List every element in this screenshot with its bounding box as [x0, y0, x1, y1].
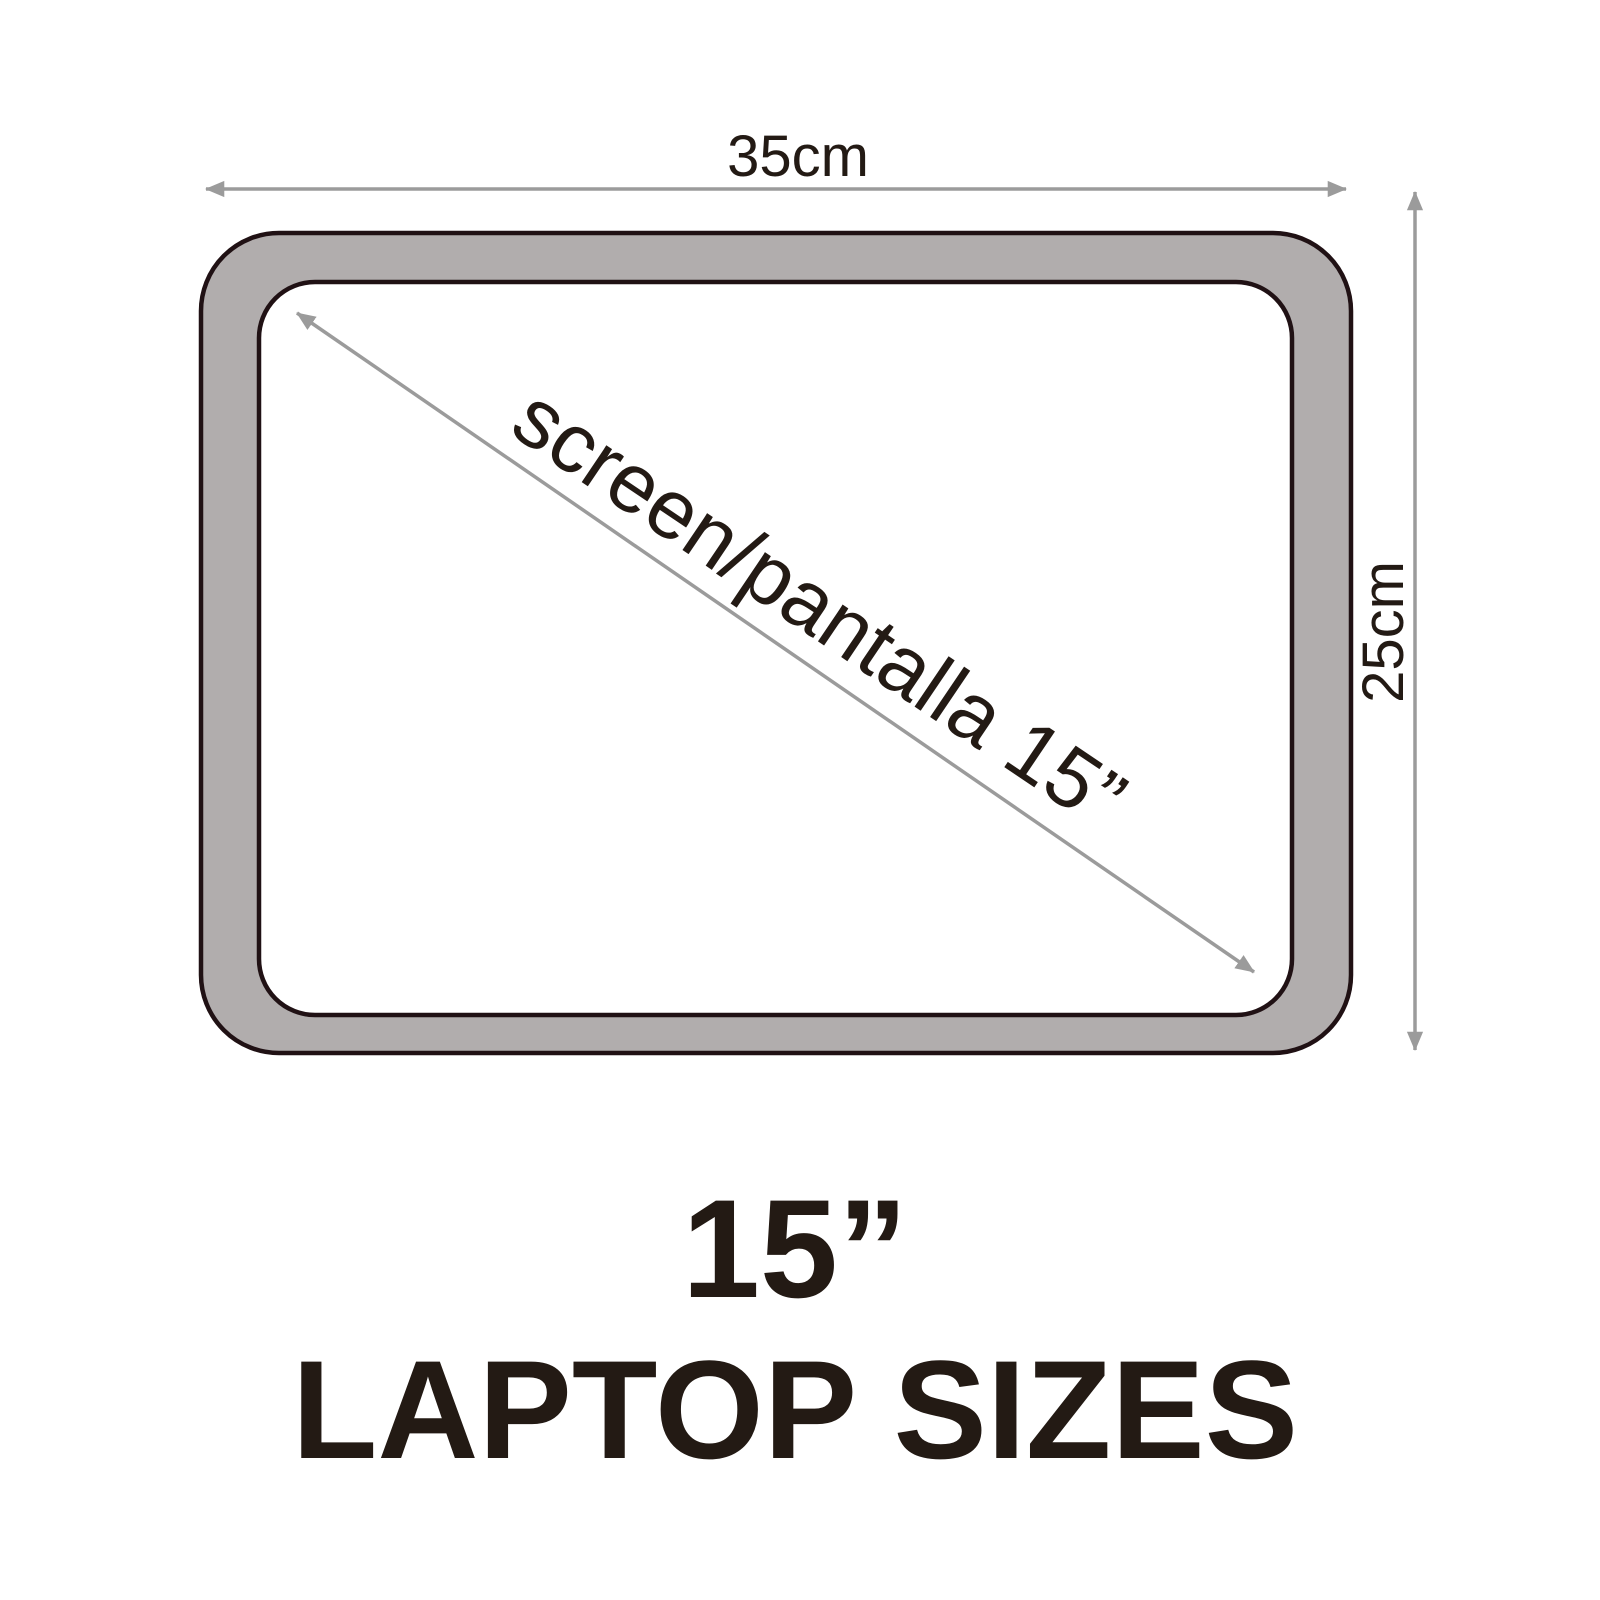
title-block: 15” LAPTOP SIZES: [292, 1169, 1298, 1490]
title-caption: LAPTOP SIZES: [292, 1330, 1298, 1491]
title-inches: 15”: [292, 1169, 1298, 1330]
width-dimension-label: 35cm: [727, 128, 869, 186]
laptop-size-diagram: 35cm 25cm screen/pantalla 15” 15” LAPTOP…: [0, 0, 1600, 1600]
height-dimension-label: 25cm: [1355, 561, 1413, 703]
